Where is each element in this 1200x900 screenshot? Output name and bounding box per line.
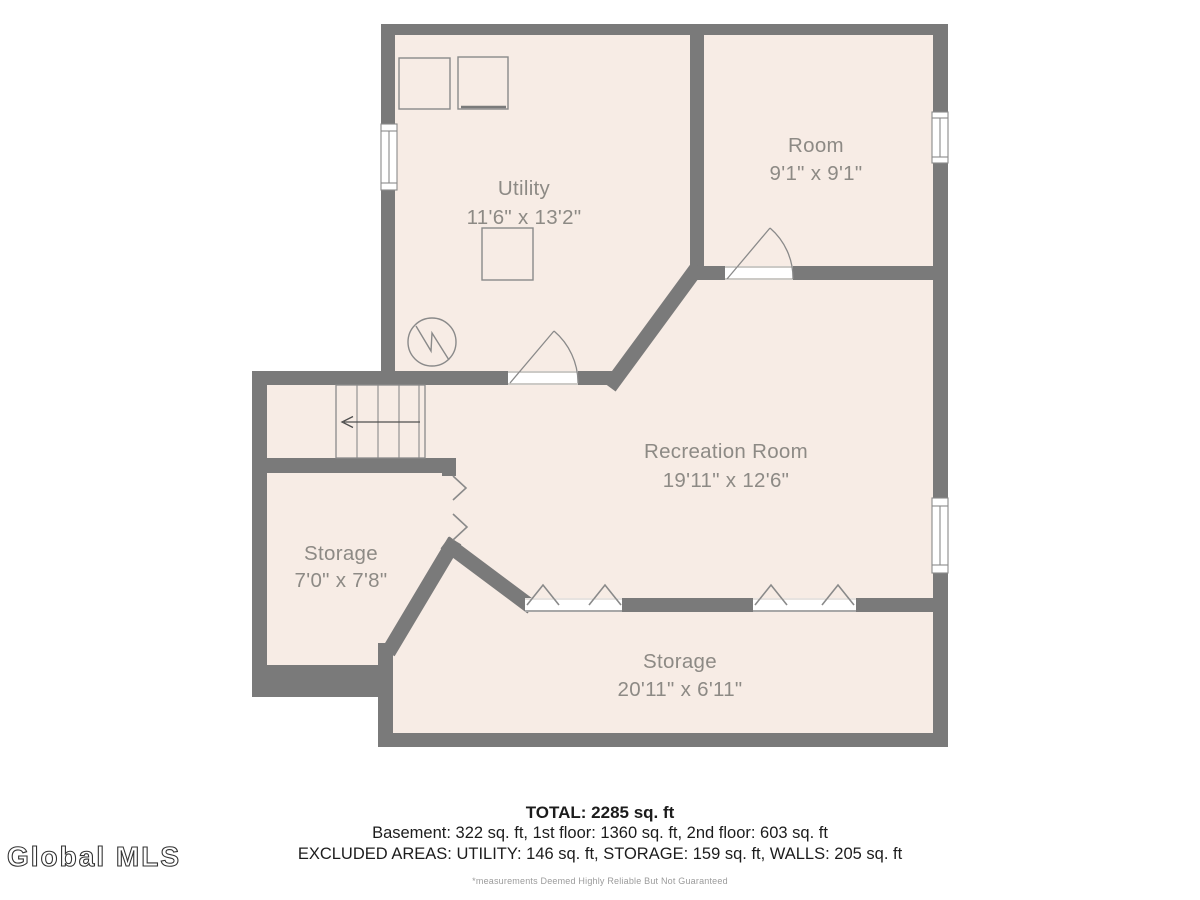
total-area-text: TOTAL: 2285 sq. ft bbox=[0, 803, 1200, 823]
wall-top bbox=[381, 24, 948, 35]
wall-storage-right-stub bbox=[442, 458, 456, 476]
room-name: Storage bbox=[304, 542, 378, 565]
room-name: Room bbox=[788, 134, 844, 157]
room-dims: 9'1" x 9'1" bbox=[770, 162, 863, 185]
room-dims: 20'11" x 6'11" bbox=[618, 678, 743, 701]
window-icon bbox=[381, 124, 397, 190]
room-name: Storage bbox=[643, 650, 717, 673]
room-dims: 11'6" x 13'2" bbox=[467, 206, 582, 229]
floorplan-page: Utility 11'6" x 13'2" Room 9'1" x 9'1" R… bbox=[0, 0, 1200, 900]
wall-left bbox=[252, 371, 267, 697]
measurement-disclaimer: *measurements Deemed Highly Reliable But… bbox=[0, 876, 1200, 886]
room-dims: 7'0" x 7'8" bbox=[295, 569, 388, 592]
wall-utility-room-divider bbox=[690, 27, 704, 280]
room-name: Utility bbox=[498, 177, 551, 200]
room-dims: 19'11" x 12'6" bbox=[663, 469, 790, 492]
room-door-opening bbox=[725, 266, 793, 280]
rec-room-passage-a bbox=[525, 598, 622, 612]
rec-room-passage-b bbox=[753, 598, 856, 612]
window-icon bbox=[932, 498, 948, 573]
wall-storage-bottom bbox=[252, 665, 392, 697]
wall-bottom bbox=[378, 733, 948, 747]
window-icon bbox=[932, 112, 948, 163]
room-name: Recreation Room bbox=[644, 440, 808, 463]
wall-utility-left bbox=[381, 24, 395, 385]
wall-rec-bottom-1 bbox=[622, 598, 753, 612]
global-mls-logo: Global MLS bbox=[7, 841, 181, 873]
basement-floorplan: Utility 11'6" x 13'2" Room 9'1" x 9'1" R… bbox=[0, 0, 1200, 900]
wall-storage-top bbox=[252, 458, 455, 473]
wall-rec-bottom-2 bbox=[856, 598, 948, 612]
